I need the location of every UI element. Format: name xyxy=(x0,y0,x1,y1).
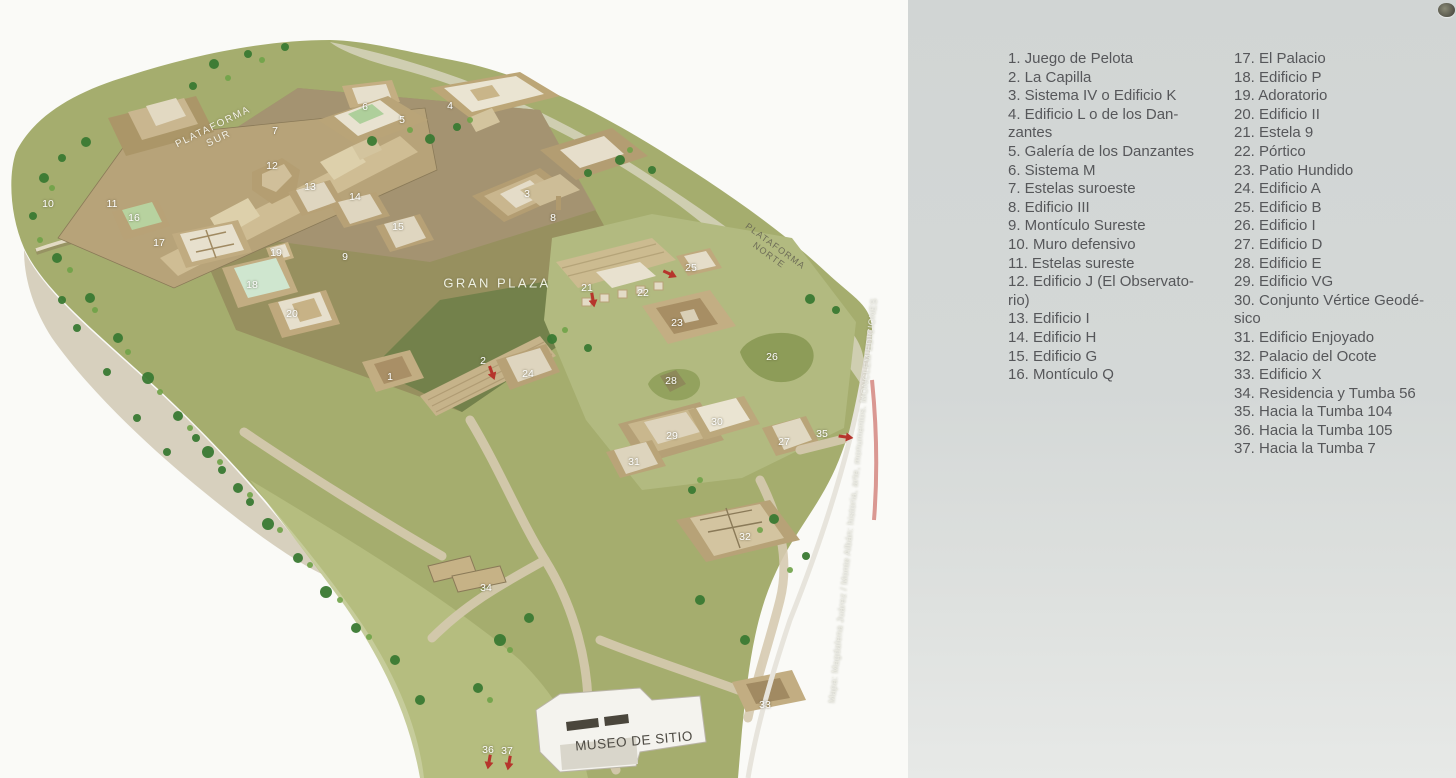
legend-item: 18. Edificio P xyxy=(1234,69,1454,88)
legend-item: 9. Montículo Sureste xyxy=(1008,217,1226,236)
legend-item: 32. Palacio del Ocote xyxy=(1234,348,1454,367)
legend-item: 26. Edificio I xyxy=(1234,217,1454,236)
legend-item: 33. Edificio X xyxy=(1234,366,1454,385)
legend-panel: 1. Juego de Pelota2. La Capilla3. Sistem… xyxy=(908,0,1456,778)
legend-item: 7. Estelas suroeste xyxy=(1008,180,1226,199)
legend-item: 13. Edificio I xyxy=(1008,310,1226,329)
legend-item: 6. Sistema M xyxy=(1008,162,1226,181)
legend-item: 1. Juego de Pelota xyxy=(1008,50,1226,69)
legend-item: 16. Montículo Q xyxy=(1008,366,1226,385)
legend-item: 34. Residencia y Tumba 56 xyxy=(1234,385,1454,404)
legend-item: 22. Pórtico xyxy=(1234,143,1454,162)
legend-item: 23. Patio Hundido xyxy=(1234,162,1454,181)
site-map: PLATAFORMA SUR GRAN PLAZA PLATAFORMA NOR… xyxy=(0,0,908,778)
site-map-illustration xyxy=(0,0,908,778)
legend-item: 14. Edificio H xyxy=(1008,329,1226,348)
legend-item: 12. Edificio J (El Observato- rio) xyxy=(1008,273,1226,310)
monte-alban-sign: PLATAFORMA SUR GRAN PLAZA PLATAFORMA NOR… xyxy=(0,0,1456,778)
legend-item: 19. Adoratorio xyxy=(1234,87,1454,106)
legend-item: 15. Edificio G xyxy=(1008,348,1226,367)
legend-item: 36. Hacia la Tumba 105 xyxy=(1234,422,1454,441)
legend-item: 4. Edificio L o de los Dan- zantes xyxy=(1008,106,1226,143)
legend-item: 20. Edificio II xyxy=(1234,106,1454,125)
screw-hole xyxy=(1438,3,1455,17)
legend-item: 21. Estela 9 xyxy=(1234,124,1454,143)
legend-item: 29. Edificio VG xyxy=(1234,273,1454,292)
legend-item: 25. Edificio B xyxy=(1234,199,1454,218)
legend-column-2: 17. El Palacio18. Edificio P19. Adorator… xyxy=(1234,50,1454,459)
legend-item: 27. Edificio D xyxy=(1234,236,1454,255)
legend-item: 35. Hacia la Tumba 104 xyxy=(1234,403,1454,422)
legend-item: 24. Edificio A xyxy=(1234,180,1454,199)
legend-item: 2. La Capilla xyxy=(1008,69,1226,88)
legend-item: 3. Sistema IV o Edificio K xyxy=(1008,87,1226,106)
legend-item: 30. Conjunto Vértice Geodé- sico xyxy=(1234,292,1454,329)
legend-item: 10. Muro defensivo xyxy=(1008,236,1226,255)
legend-item: 31. Edificio Enjoyado xyxy=(1234,329,1454,348)
legend-item: 17. El Palacio xyxy=(1234,50,1454,69)
legend-item: 8. Edificio III xyxy=(1008,199,1226,218)
legend-item: 5. Galería de los Danzantes xyxy=(1008,143,1226,162)
legend-item: 37. Hacia la Tumba 7 xyxy=(1234,440,1454,459)
legend-item: 28. Edificio E xyxy=(1234,255,1454,274)
legend-item: 11. Estelas sureste xyxy=(1008,255,1226,274)
legend-column-1: 1. Juego de Pelota2. La Capilla3. Sistem… xyxy=(1008,50,1226,385)
